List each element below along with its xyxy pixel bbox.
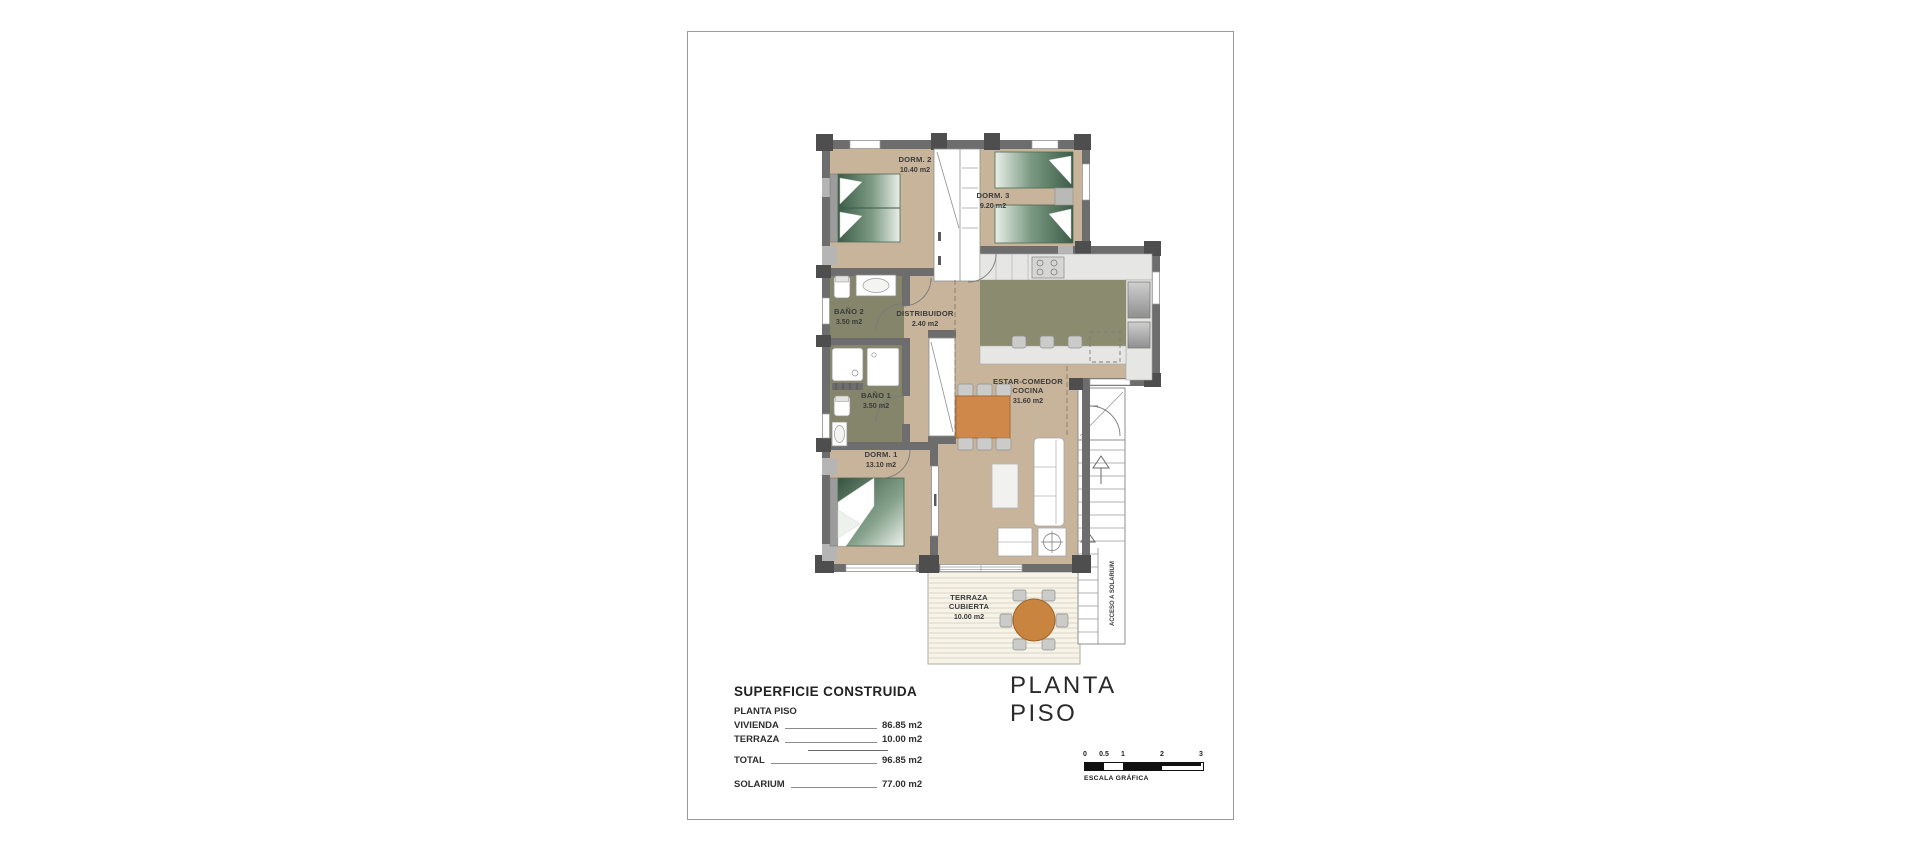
svg-text:DORM. 3: DORM. 3 [976, 191, 1009, 200]
graphic-scale: 0 0.5 1 2 3 ESCALA GRÁFICA [1084, 751, 1204, 782]
svg-text:ESTAR-COMEDOR: ESTAR-COMEDOR [993, 377, 1063, 386]
svg-text:10.40 m2: 10.40 m2 [900, 165, 930, 174]
summary-row-terraza: TERRAZA 10.00 m2 [734, 734, 928, 745]
svg-text:BAÑO 2: BAÑO 2 [834, 307, 864, 316]
terrace-deck [928, 572, 1080, 664]
summary-row-total: TOTAL 96.85 m2 [734, 755, 928, 766]
kitchen [980, 254, 1152, 380]
summary-heading: SUPERFICIE CONSTRUIDA [734, 684, 928, 699]
bathroom2-fixtures [834, 275, 896, 298]
fridge-icon [1128, 282, 1150, 318]
dining-set [956, 384, 1011, 450]
summary-divider [808, 750, 888, 751]
svg-text:BAÑO 1: BAÑO 1 [861, 391, 891, 400]
surface-summary: SUPERFICIE CONSTRUIDA PLANTA PISO VIVIEN… [734, 684, 928, 790]
svg-text:2.40 m2: 2.40 m2 [912, 319, 938, 328]
screenshot-canvas: ACCESO A SOLARIUM [0, 0, 1920, 850]
tv-cabinet [998, 528, 1032, 556]
summary-row-solarium: SOLARIUM 77.00 m2 [734, 779, 928, 790]
summary-subheading: PLANTA PISO [734, 706, 928, 717]
svg-text:3.50 m2: 3.50 m2 [863, 401, 889, 410]
bed-dorm1 [830, 478, 904, 546]
svg-text:DORM. 1: DORM. 1 [864, 450, 898, 459]
svg-text:TERRAZA: TERRAZA [950, 593, 988, 602]
floor-plan-sheet: ACCESO A SOLARIUM [687, 31, 1234, 820]
svg-text:DORM. 2: DORM. 2 [898, 155, 931, 164]
svg-text:3.50 m2: 3.50 m2 [836, 317, 862, 326]
scale-bar [1084, 762, 1204, 771]
scale-caption: ESCALA GRÁFICA [1084, 775, 1204, 782]
svg-text:COCINA: COCINA [1012, 386, 1043, 395]
washing-machine-icon [1038, 528, 1066, 556]
coffee-table [992, 464, 1018, 508]
scale-ticks: 0 0.5 1 2 3 [1084, 751, 1204, 761]
svg-text:10.00 m2: 10.00 m2 [954, 612, 984, 621]
hob-icon [1032, 257, 1064, 278]
svg-text:9.20 m2: 9.20 m2 [980, 201, 1006, 210]
svg-text:31.60 m2: 31.60 m2 [1013, 396, 1043, 405]
summary-row-vivienda: VIVIENDA 86.85 m2 [734, 720, 928, 731]
svg-text:CUBIERTA: CUBIERTA [949, 602, 990, 611]
sofa [1034, 438, 1064, 526]
svg-text:DISTRIBUIDOR: DISTRIBUIDOR [896, 309, 954, 318]
stairs-label: ACCESO A SOLARIUM [1110, 561, 1116, 626]
page-title: PLANTA PISO [1010, 672, 1170, 728]
bed-dorm2 [830, 174, 900, 242]
svg-text:13.10 m2: 13.10 m2 [866, 460, 896, 469]
